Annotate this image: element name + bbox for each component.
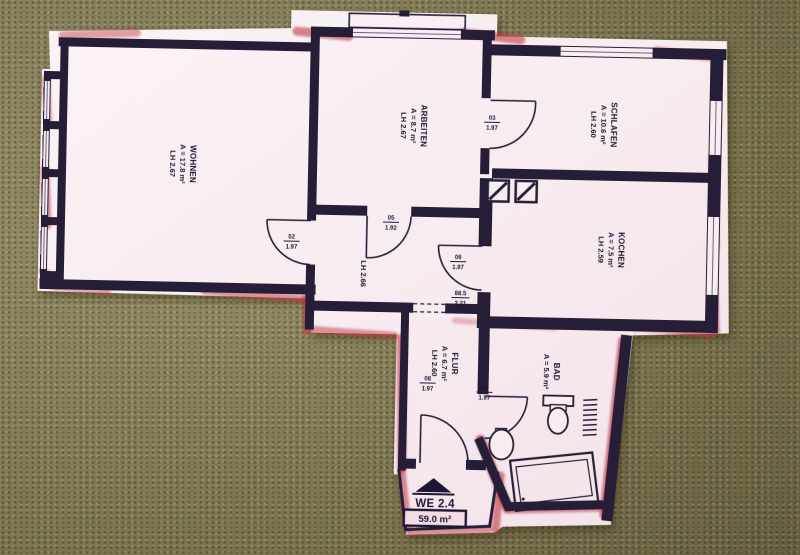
svg-text:LH 2.67: LH 2.67 [399,112,409,139]
svg-text:A = 17.8 m²: A = 17.8 m² [178,144,188,184]
svg-text:A = 8.7 m²: A = 8.7 m² [409,108,419,144]
svg-text:A = 10.6 m²: A = 10.6 m² [599,105,609,145]
svg-text:03: 03 [489,116,496,122]
svg-text:KOCHEN: KOCHEN [616,232,626,268]
svg-text:1.97: 1.97 [478,396,490,402]
svg-text:2.21: 2.21 [454,301,466,307]
svg-text:ARBEITEN: ARBEITEN [419,105,429,148]
svg-text:02: 02 [288,235,295,241]
svg-text:1.97: 1.97 [286,245,298,251]
sink-fixture [489,428,514,459]
hall-height-label: LH 2.66 [359,260,369,287]
svg-text:WOHNEN: WOHNEN [188,145,198,183]
svg-text:88.5: 88.5 [455,291,467,297]
svg-text:06: 06 [455,255,462,261]
svg-text:LH 2.66: LH 2.66 [359,260,369,287]
svg-text:08: 08 [424,376,431,382]
svg-text:A = 6.7 m²: A = 6.7 m² [440,346,450,382]
svg-text:LH 2.67: LH 2.67 [168,150,178,177]
carpet-background: { "scene": { "description": "hand-highli… [0,0,800,555]
svg-text:FLUR: FLUR [450,352,459,374]
paper-cutout [33,5,736,541]
svg-text:1.97: 1.97 [452,265,464,271]
svg-text:A = 7.5 m²: A = 7.5 m² [606,232,616,268]
svg-text:1.97: 1.97 [486,126,498,132]
total-area-value: 59.0 m² [418,514,451,526]
svg-text:SCHLAFEN: SCHLAFEN [609,102,619,147]
svg-text:LH 2.60: LH 2.60 [430,350,440,377]
svg-text:05: 05 [388,216,395,222]
svg-text:09: 09 [481,386,488,392]
svg-text:LH 2.59: LH 2.59 [596,236,606,263]
floor-plan-photo: WOHNEN A = 17.8 m² LH 2.67 ARBEITEN A = … [0,0,800,555]
svg-text:A = 5.9 m²: A = 5.9 m² [542,354,552,390]
room-label-kochen: KOCHEN A = 7.5 m² LH 2.59 [596,232,626,269]
svg-text:LH 2.60: LH 2.60 [589,111,599,138]
svg-text:1.92: 1.92 [385,226,397,232]
floor-plan-cutout: WOHNEN A = 17.8 m² LH 2.67 ARBEITEN A = … [33,3,736,541]
unit-label: WE 2.4 [415,498,455,511]
svg-text:1.97: 1.97 [422,386,434,392]
svg-text:BAD: BAD [552,363,561,381]
